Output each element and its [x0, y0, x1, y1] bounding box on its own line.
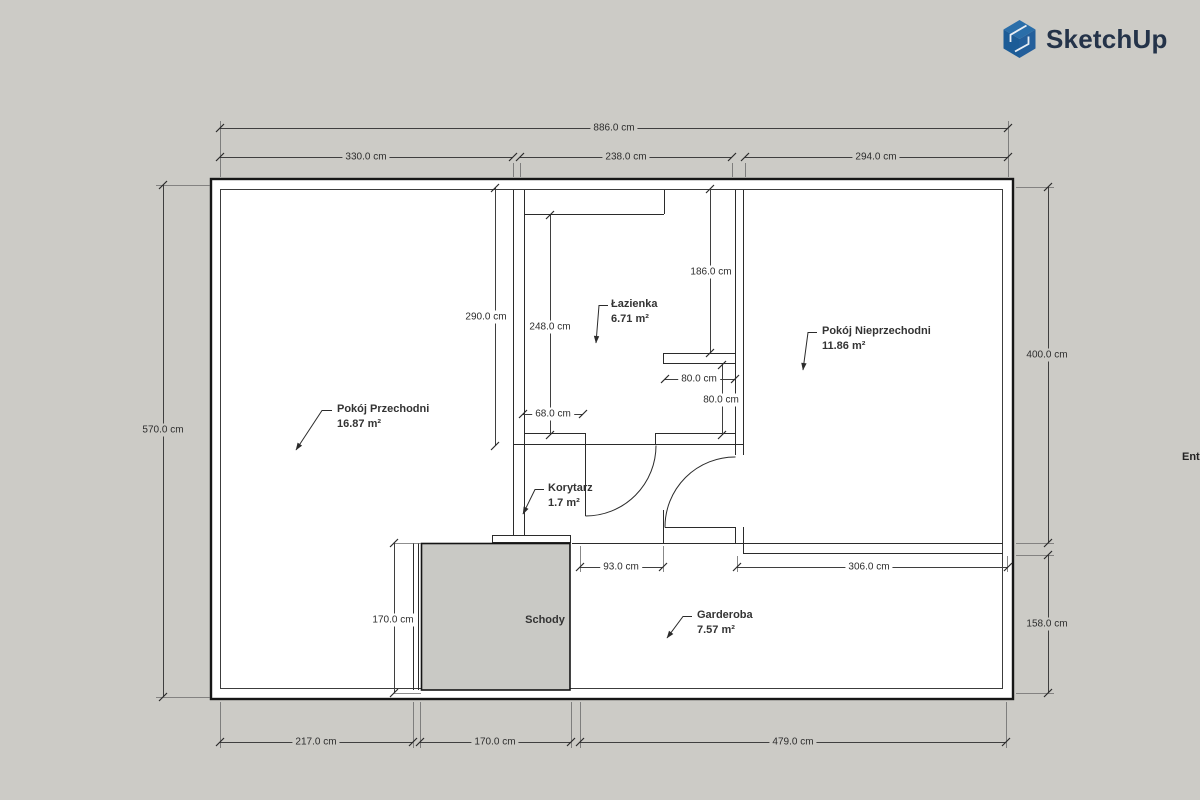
dim-right-upper: 400.0 cm — [1023, 349, 1070, 362]
room-name: Pokój Nieprzechodni — [822, 324, 931, 339]
dim-top-segment-1: 330.0 cm — [342, 151, 389, 164]
dim-bottom-segment-3: 479.0 cm — [769, 736, 816, 749]
wall-stub-above-stairs — [493, 536, 571, 543]
dim-bathroom-inner-height: 248.0 cm — [526, 321, 573, 334]
room-area: 6.71 m² — [611, 312, 657, 327]
room-label-garderoba: Garderoba 7.57 m² — [697, 608, 753, 638]
room-label-schody: Schody — [525, 614, 565, 626]
dim-right-lower: 158.0 cm — [1023, 618, 1070, 631]
dim-top-segment-2: 238.0 cm — [602, 151, 649, 164]
sketchup-logo: SketchUp — [1001, 19, 1168, 59]
room-label-lazienka: Łazienka 6.71 m² — [611, 297, 657, 327]
room-area: 11.86 m² — [822, 339, 931, 354]
dim-top-segment-3: 294.0 cm — [852, 151, 899, 164]
sketchup-logo-icon — [1001, 19, 1038, 59]
dim-bottom-segment-1: 217.0 cm — [292, 736, 339, 749]
floor-plan-stage: 886.0 cm 330.0 cm 238.0 cm 294.0 cm 570.… — [0, 0, 1200, 800]
room-label-korytarz: Korytarz 1.7 m² — [548, 481, 593, 511]
room-area: 16.87 m² — [337, 417, 429, 432]
dim-total-width: 886.0 cm — [590, 122, 637, 135]
dim-left-height: 570.0 cm — [139, 424, 186, 437]
room-name: Korytarz — [548, 481, 593, 496]
dim-niche-height: 80.0 cm — [700, 394, 742, 407]
dim-bottom-segment-2: 170.0 cm — [471, 736, 518, 749]
room-name: Łazienka — [611, 297, 657, 312]
dim-garderoba-width: 306.0 cm — [845, 561, 892, 574]
dim-niche-width: 80.0 cm — [678, 373, 720, 386]
dim-corridor-passage: 93.0 cm — [600, 561, 642, 574]
room-name: Pokój Przechodni — [337, 402, 429, 417]
dim-stairs-height: 170.0 cm — [369, 614, 416, 627]
dim-bathroom-height: 290.0 cm — [462, 311, 509, 324]
room-name: Garderoba — [697, 608, 753, 623]
dim-bathroom-right-height: 186.0 cm — [687, 266, 734, 279]
edge-clipped-text: Ent — [1182, 451, 1200, 463]
exterior-walls — [211, 179, 1013, 699]
brand-name: SketchUp — [1046, 24, 1168, 55]
room-area: 1.7 m² — [548, 496, 593, 511]
room-label-pokoj-nieprzechodni: Pokój Nieprzechodni 11.86 m² — [822, 324, 931, 354]
dim-bathroom-bottom-wall: 68.0 cm — [532, 408, 574, 421]
floor-plan-canvas — [0, 0, 1200, 800]
room-label-pokoj-przechodni: Pokój Przechodni 16.87 m² — [337, 402, 429, 432]
room-area: 7.57 m² — [697, 623, 753, 638]
